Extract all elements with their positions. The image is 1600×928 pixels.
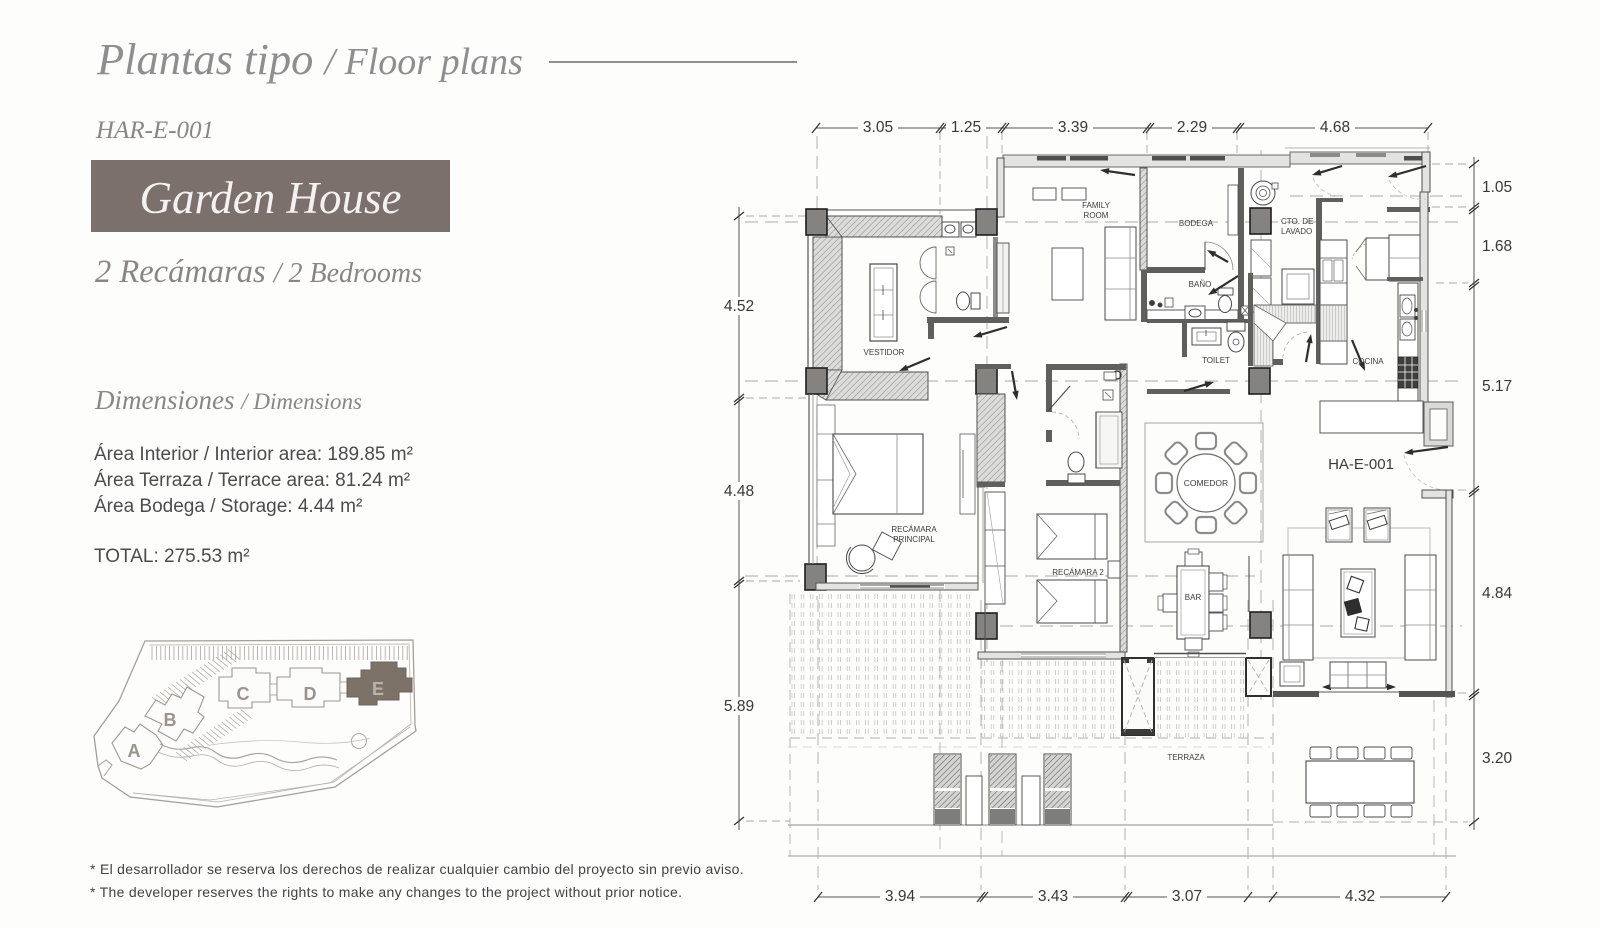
svg-text:3.05: 3.05 (863, 119, 893, 136)
svg-text:C: C (237, 684, 250, 704)
svg-text:3.94: 3.94 (885, 888, 916, 905)
svg-text:A: A (128, 741, 141, 761)
svg-text:4.84: 4.84 (1482, 585, 1513, 602)
svg-text:3.20: 3.20 (1482, 750, 1513, 767)
svg-text:1.68: 1.68 (1482, 238, 1512, 255)
svg-text:3.43: 3.43 (1038, 888, 1068, 905)
svg-text:BODEGA: BODEGA (1179, 219, 1214, 228)
svg-text:3.07: 3.07 (1172, 888, 1202, 905)
svg-text:3.39: 3.39 (1058, 119, 1088, 136)
svg-text:4.68: 4.68 (1320, 119, 1350, 136)
svg-text:5.89: 5.89 (724, 698, 754, 715)
svg-text:LAVADO: LAVADO (1281, 227, 1312, 236)
svg-text:CTO. DE: CTO. DE (1281, 217, 1313, 226)
svg-text:1.05: 1.05 (1482, 179, 1512, 196)
svg-text:TOILET: TOILET (1202, 356, 1230, 365)
svg-text:RECÁMARA: RECÁMARA (891, 525, 937, 534)
svg-text:FAMILY: FAMILY (1082, 201, 1111, 210)
svg-text:VESTIDOR: VESTIDOR (864, 348, 905, 357)
svg-text:2.29: 2.29 (1177, 119, 1207, 136)
svg-text:PRINCIPAL: PRINCIPAL (893, 535, 935, 544)
svg-text:BAÑO: BAÑO (1189, 280, 1212, 289)
svg-text:4.48: 4.48 (724, 483, 754, 500)
svg-text:4.52: 4.52 (724, 298, 754, 315)
svg-text:5.17: 5.17 (1482, 378, 1512, 395)
svg-text:ROOM: ROOM (1084, 211, 1109, 220)
svg-text:TERRAZA: TERRAZA (1167, 753, 1205, 762)
svg-text:COMEDOR: COMEDOR (1184, 478, 1228, 488)
svg-text:BAR: BAR (1185, 593, 1202, 602)
svg-text:HA-E-001: HA-E-001 (1328, 456, 1394, 473)
svg-text:1.25: 1.25 (951, 119, 981, 136)
svg-text:D: D (304, 684, 317, 704)
svg-text:B: B (164, 710, 177, 730)
svg-text:COCINA: COCINA (1352, 357, 1384, 366)
svg-text:RECÁMARA 2: RECÁMARA 2 (1052, 568, 1104, 577)
svg-text:4.32: 4.32 (1345, 888, 1375, 905)
svg-text:E: E (372, 679, 384, 699)
